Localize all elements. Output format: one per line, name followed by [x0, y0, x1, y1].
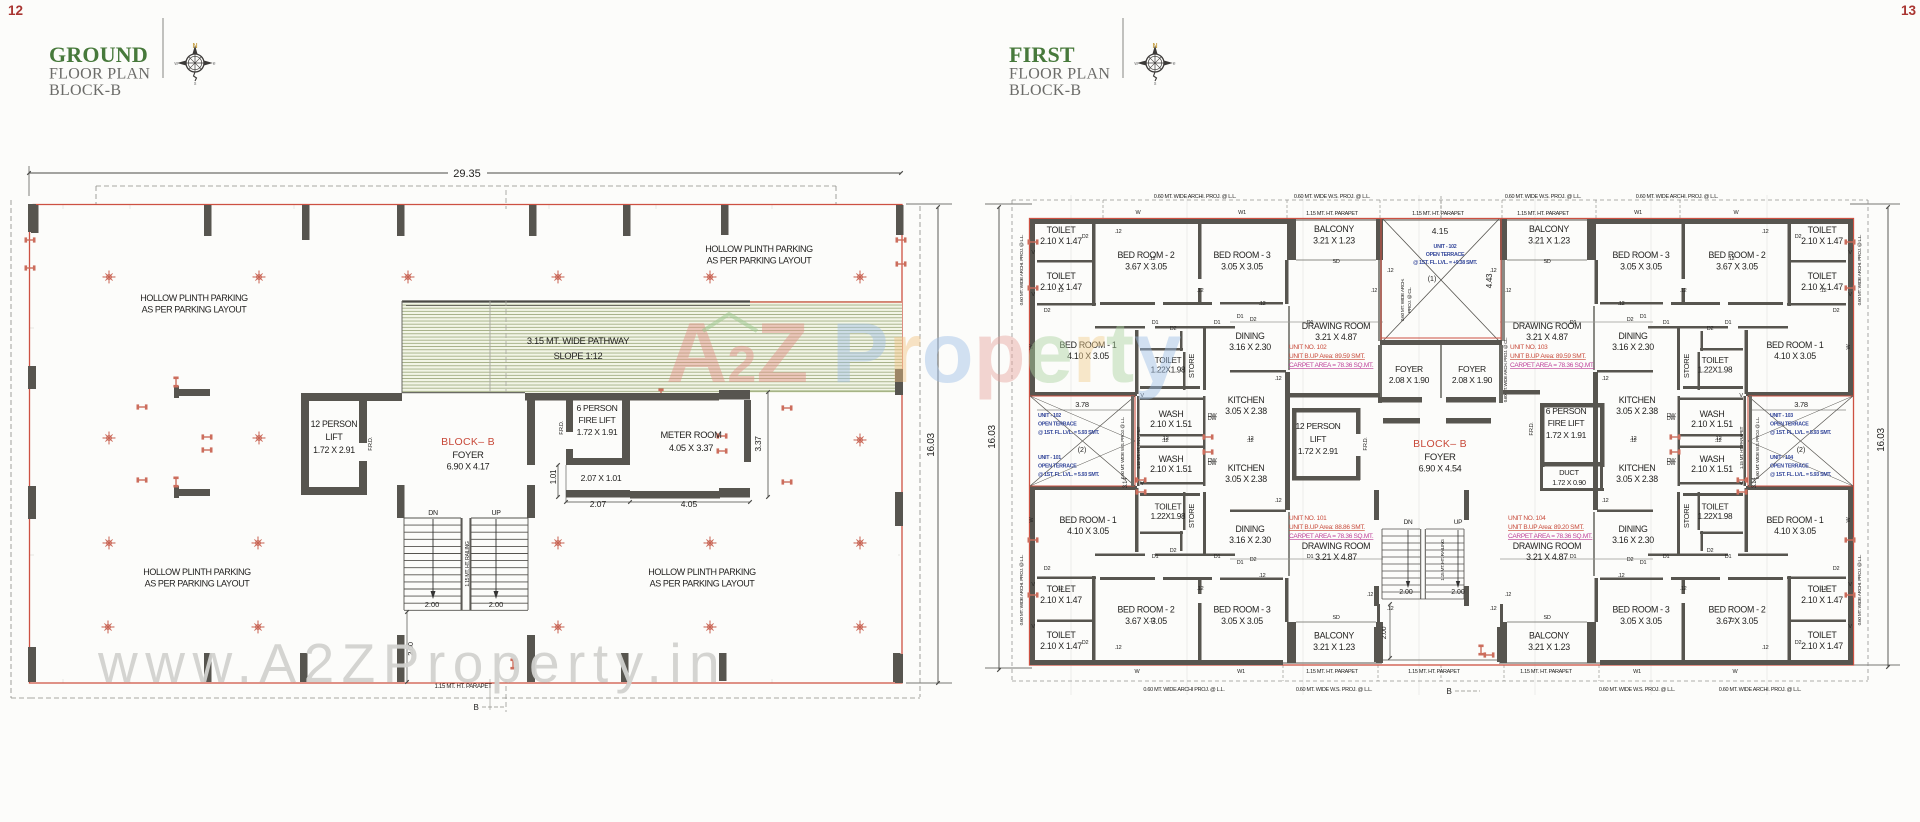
svg-text:WASH: WASH [1159, 409, 1184, 419]
svg-text:3.05 X 3.05: 3.05 X 3.05 [1620, 262, 1662, 272]
svg-text:1.22X1.98: 1.22X1.98 [1151, 512, 1186, 521]
svg-text:.12: .12 [1505, 288, 1512, 294]
svg-text:B: B [1446, 687, 1451, 696]
svg-text:4.05 X 3.37: 4.05 X 3.37 [669, 443, 713, 453]
svg-text:D2: D2 [1707, 548, 1714, 554]
svg-text:3.67 X 3.05: 3.67 X 3.05 [1716, 262, 1758, 272]
svg-text:D1: D1 [1663, 554, 1670, 560]
svg-text:TOILET: TOILET [1047, 630, 1077, 640]
svg-text:www.A2ZProperty.in: www.A2ZProperty.in [97, 632, 727, 694]
svg-text:3.21 X 4.87: 3.21 X 4.87 [1526, 332, 1568, 342]
svg-text:(2): (2) [1797, 447, 1806, 454]
svg-text:.12: .12 [1728, 256, 1735, 262]
svg-text:DW: DW [1667, 461, 1677, 467]
svg-text:DINING: DINING [1619, 524, 1648, 534]
svg-text:3.05 X 3.05: 3.05 X 3.05 [1221, 616, 1263, 626]
svg-text:2.00: 2.00 [1381, 626, 1388, 639]
svg-text:3.21 X 1.23: 3.21 X 1.23 [1528, 642, 1570, 652]
svg-text:D1: D1 [1570, 554, 1577, 560]
svg-text:BLOCK– B: BLOCK– B [441, 436, 495, 448]
svg-text:2.10 X 1.47: 2.10 X 1.47 [1040, 641, 1082, 651]
svg-text:B: B [473, 703, 478, 712]
svg-text:UNIT NO. 103: UNIT NO. 103 [1510, 344, 1548, 351]
svg-text:AS PER PARKING LAYOUT: AS PER PARKING LAYOUT [707, 256, 813, 266]
svg-text:3.78: 3.78 [1075, 400, 1089, 409]
svg-text:.12: .12 [1387, 606, 1394, 612]
svg-text:.12: .12 [1149, 618, 1156, 624]
svg-text:1.22X1.98: 1.22X1.98 [1698, 512, 1733, 521]
svg-text:W1: W1 [1238, 210, 1246, 216]
svg-text:CARPET AREA = 78.36 SQ.MT.: CARPET AREA = 78.36 SQ.MT. [1289, 533, 1374, 540]
svg-text:UNIT - 101: UNIT - 101 [1038, 455, 1061, 461]
svg-text:2.08 X 1.90: 2.08 X 1.90 [1389, 375, 1430, 385]
svg-text:2.08 X 1.90: 2.08 X 1.90 [1452, 375, 1493, 385]
svg-text:KITCHEN: KITCHEN [1619, 463, 1656, 473]
svg-text:BALCONY: BALCONY [1314, 631, 1354, 641]
svg-text:.12: .12 [1259, 301, 1266, 307]
svg-text:1.72 X 2.91: 1.72 X 2.91 [313, 445, 355, 455]
svg-text:STORE: STORE [1682, 354, 1691, 378]
svg-text:D2: D2 [1795, 640, 1802, 646]
svg-text:DINING: DINING [1236, 331, 1265, 341]
svg-text:3.05 X 2.38: 3.05 X 2.38 [1616, 406, 1658, 416]
svg-text:1.15 MT. HT. PARAPET: 1.15 MT. HT. PARAPET [1408, 669, 1461, 675]
svg-text:.12: .12 [1197, 288, 1204, 294]
svg-text:3.37: 3.37 [753, 436, 763, 452]
svg-text:UNIT NO. 101: UNIT NO. 101 [1289, 515, 1327, 522]
svg-text:TOILET: TOILET [1808, 271, 1838, 281]
svg-text:4.05: 4.05 [681, 499, 698, 509]
svg-text:FOYER: FOYER [1424, 452, 1456, 463]
svg-text:2.10 X 1.47: 2.10 X 1.47 [1801, 236, 1843, 246]
svg-text:AS PER PARKING LAYOUT: AS PER PARKING LAYOUT [145, 579, 251, 589]
svg-text:1.72 X 1.91: 1.72 X 1.91 [1546, 430, 1587, 440]
svg-text:1.15 MT. HT. PARAPET: 1.15 MT. HT. PARAPET [1412, 211, 1465, 217]
svg-text:0.60 MT. WIDE ARCHI PROJ.: 0.60 MT. WIDE ARCHI PROJ. @ L.L. [1143, 687, 1225, 693]
svg-text:13: 13 [1901, 3, 1917, 18]
svg-text:2.10 X 1.47: 2.10 X 1.47 [1801, 595, 1843, 605]
svg-text:UNIT - 103: UNIT - 103 [1770, 413, 1793, 419]
svg-text:.12: .12 [1057, 288, 1064, 294]
svg-text:DINING: DINING [1619, 331, 1648, 341]
svg-text:@ 1ST. FL. LVL. = 5.93 SMT.: @ 1ST. FL. LVL. = 5.93 SMT. [1770, 430, 1832, 436]
svg-text:TOILET: TOILET [1047, 271, 1077, 281]
svg-text:D1: D1 [1725, 320, 1732, 326]
svg-text:2.10 X 1.47: 2.10 X 1.47 [1040, 236, 1082, 246]
svg-text:SD: SD [1332, 259, 1339, 265]
svg-text:D1: D1 [1570, 320, 1577, 326]
svg-text:UP: UP [491, 510, 501, 517]
svg-text:.12: .12 [1057, 586, 1064, 592]
svg-text:LIFT: LIFT [1310, 434, 1326, 444]
svg-text:.12: .12 [1275, 376, 1282, 382]
svg-text:D2: D2 [1795, 234, 1802, 240]
svg-text:SLOPE 1:12: SLOPE 1:12 [554, 351, 603, 361]
svg-text:12 PERSON: 12 PERSON [1295, 421, 1340, 431]
svg-text:UNIT B.UP Area: 89.59 SMT.: UNIT B.UP Area: 89.59 SMT. [1510, 353, 1586, 360]
svg-text:BED ROOM - 1: BED ROOM - 1 [1766, 515, 1823, 525]
svg-text:HOLLOW PLINTH PARKING: HOLLOW PLINTH PARKING [705, 244, 813, 254]
svg-text:.12: .12 [1115, 229, 1122, 235]
svg-text:3.16 X 2.30: 3.16 X 2.30 [1229, 535, 1271, 545]
svg-text:OPEN TERRACE: OPEN TERRACE [1770, 422, 1809, 428]
svg-text:3.05 X 2.38: 3.05 X 2.38 [1225, 406, 1267, 416]
svg-text:DW: DW [1667, 413, 1677, 419]
svg-text:3.78: 3.78 [1794, 400, 1808, 409]
svg-text:D2: D2 [1250, 557, 1257, 563]
svg-text:.12: .12 [1728, 618, 1735, 624]
svg-text:3.67 X 3.05: 3.67 X 3.05 [1716, 616, 1758, 626]
svg-text:(2): (2) [1078, 447, 1087, 454]
svg-text:.12: .12 [1762, 645, 1769, 651]
svg-text:3.14: 3.14 [1752, 477, 1758, 488]
svg-text:3.05 X 2.38: 3.05 X 2.38 [1616, 474, 1658, 484]
svg-text:BALCONY: BALCONY [1314, 224, 1354, 234]
svg-text:WASH: WASH [1700, 454, 1725, 464]
svg-text:FIRE LIFT: FIRE LIFT [579, 415, 617, 425]
svg-text:BED ROOM - 2: BED ROOM - 2 [1708, 605, 1765, 615]
svg-text:0.60 MT. WIDE W.S. PROJ. @: 0.60 MT. WIDE W.S. PROJ. @ L.L. [1296, 687, 1373, 693]
svg-text:1.15 MT. HT. PARAPET: 1.15 MT. HT. PARAPET [1739, 426, 1744, 469]
svg-text:LIFT: LIFT [326, 432, 344, 442]
svg-text:@ 1ST. FL. LVL. = 5.93 SMT.: @ 1ST. FL. LVL. = 5.93 SMT. [1038, 472, 1100, 478]
svg-text:AS PER PARKING LAYOUT: AS PER PARKING LAYOUT [650, 579, 756, 589]
svg-text:DRAWING ROOM: DRAWING ROOM [1302, 541, 1370, 551]
svg-text:1.15 MT. HT. PARAPET: 1.15 MT. HT. PARAPET [1517, 211, 1570, 217]
svg-text:4.10 X 3.05: 4.10 X 3.05 [1774, 351, 1816, 361]
svg-text:METER ROOM: METER ROOM [660, 430, 721, 440]
svg-text:4.43: 4.43 [1485, 273, 1494, 288]
svg-text:1.22X1.98: 1.22X1.98 [1698, 366, 1733, 375]
svg-text:W1: W1 [1634, 210, 1642, 216]
svg-text:D2: D2 [1170, 548, 1177, 554]
svg-text:12 PERSON: 12 PERSON [311, 419, 358, 429]
svg-text:.12: .12 [1275, 498, 1282, 504]
svg-text:D2: D2 [1044, 566, 1051, 572]
svg-text:@ 1ST. FL. LVL. = 5.93 SMT.: @ 1ST. FL. LVL. = 5.93 SMT. [1770, 472, 1832, 478]
svg-text:3.05 X 3.05: 3.05 X 3.05 [1620, 616, 1662, 626]
svg-text:.12: .12 [1715, 436, 1722, 442]
svg-text:D1: D1 [1214, 320, 1221, 326]
svg-text:D1: D1 [1307, 554, 1314, 560]
svg-text:D2: D2 [1833, 566, 1840, 572]
svg-text:@ 1ST. FL. LVL. = +9.38 SMT.: @ 1ST. FL. LVL. = +9.38 SMT. [1413, 260, 1478, 266]
svg-text:2.10 X 1.51: 2.10 X 1.51 [1691, 464, 1733, 474]
svg-text:D1: D1 [1152, 554, 1159, 560]
svg-text:.12: .12 [1618, 301, 1625, 307]
svg-text:BED ROOM - 3: BED ROOM - 3 [1612, 605, 1669, 615]
svg-text:16.03: 16.03 [926, 433, 937, 457]
svg-text:12: 12 [8, 3, 23, 18]
svg-text:DN: DN [1404, 519, 1413, 526]
svg-text:D2: D2 [1082, 640, 1089, 646]
svg-text:6.90 X 4.54: 6.90 X 4.54 [1419, 464, 1462, 474]
svg-text:D2: D2 [1082, 234, 1089, 240]
svg-text:DUCT: DUCT [1559, 468, 1579, 477]
svg-text:0.60 MT. WIDE W.S. PROJ. @ L.L: 0.60 MT. WIDE W.S. PROJ. @ L.L. [1120, 417, 1125, 479]
svg-text:.12: .12 [1149, 256, 1156, 262]
svg-text:2.00: 2.00 [425, 600, 440, 609]
svg-text:BED ROOM - 3: BED ROOM - 3 [1213, 250, 1270, 260]
svg-text:3.05 X 2.38: 3.05 X 2.38 [1225, 474, 1267, 484]
svg-text:DW: DW [1208, 461, 1218, 467]
svg-text:2.10 X 1.51: 2.10 X 1.51 [1150, 464, 1192, 474]
svg-text:0.60 MT. WIDE W.S. PROJ. @: 0.60 MT. WIDE W.S. PROJ. @ L.L. [1294, 194, 1371, 200]
svg-text:29.35: 29.35 [453, 168, 481, 180]
svg-text:D1: D1 [1725, 554, 1732, 560]
svg-text:GROUND: GROUND [49, 42, 148, 67]
svg-text:.12: .12 [1490, 606, 1497, 612]
svg-text:0.60 MT. WIDE W.S. PROJ. @: 0.60 MT. WIDE W.S. PROJ. @ L.L. [1599, 687, 1676, 693]
svg-text:UNIT NO. 102: UNIT NO. 102 [1289, 344, 1327, 351]
svg-text:3.15 MT. WIDE PATHWAY: 3.15 MT. WIDE PATHWAY [527, 336, 629, 346]
svg-text:UNIT B.UP Area: 89.20 SMT.: UNIT B.UP Area: 89.20 SMT. [1508, 524, 1584, 531]
svg-text:BED ROOM - 2: BED ROOM - 2 [1708, 250, 1765, 260]
svg-text:D1: D1 [1307, 320, 1314, 326]
svg-text:.12: .12 [1680, 288, 1687, 294]
svg-text:3.21 X 4.87: 3.21 X 4.87 [1315, 552, 1357, 562]
svg-text:2.00: 2.00 [1399, 589, 1413, 596]
svg-text:AS PER PARKING LAYOUT: AS PER PARKING LAYOUT [142, 305, 248, 315]
svg-text:16.03: 16.03 [987, 425, 998, 449]
svg-text:.12: .12 [1680, 586, 1687, 592]
svg-text:BLOCK-B: BLOCK-B [1009, 82, 1081, 99]
svg-text:.12: .12 [1630, 436, 1637, 442]
svg-text:DRAWING ROOM: DRAWING ROOM [1513, 541, 1581, 551]
svg-text:.12: .12 [1371, 288, 1378, 294]
svg-text:1.15 MT. HT. RAILING: 1.15 MT. HT. RAILING [1440, 539, 1446, 581]
svg-text:1.15 MT. HT. PARAPET: 1.15 MT. HT. PARAPET [1306, 211, 1359, 217]
svg-text:.12: .12 [1259, 573, 1266, 579]
svg-text:4.15: 4.15 [1432, 226, 1449, 236]
svg-text:UNIT NO. 104: UNIT NO. 104 [1508, 515, 1546, 522]
svg-text:1.72 X 2.91: 1.72 X 2.91 [1298, 446, 1339, 456]
svg-text:FIRST: FIRST [1009, 42, 1075, 67]
svg-text:0.60 MT. WIDE W.S. PROJ. @ L.L: 0.60 MT. WIDE W.S. PROJ. @ L.L. [1755, 417, 1760, 479]
svg-text:CARPET AREA = 78.36 SQ.MT.: CARPET AREA = 78.36 SQ.MT. [1510, 362, 1595, 369]
svg-text:BLOCK-B: BLOCK-B [49, 82, 121, 99]
svg-text:TOILET: TOILET [1808, 630, 1838, 640]
svg-text:0.60 MT. WIDE ARCHI. PROJ. @ L: 0.60 MT. WIDE ARCHI. PROJ. @ L.L. [1857, 235, 1863, 306]
svg-text:1.15 MT. HT. RAILING: 1.15 MT. HT. RAILING [465, 541, 471, 587]
svg-text:0.60 MT. WIDE ARCHI. PROJ. @ L: 0.60 MT. WIDE ARCHI. PROJ. @ L.L. [1019, 555, 1025, 626]
svg-text:W1: W1 [1633, 669, 1641, 675]
svg-text:TOILET: TOILET [1808, 225, 1838, 235]
svg-text:D1: D1 [1237, 314, 1244, 320]
svg-text:@ 1ST. FL. LVL. = 5.93 SMT.: @ 1ST. FL. LVL. = 5.93 SMT. [1038, 430, 1100, 436]
svg-text:3.21 X 1.23: 3.21 X 1.23 [1313, 642, 1355, 652]
svg-text:.12: .12 [1162, 436, 1169, 442]
svg-text:3.21 X 4.87: 3.21 X 4.87 [1526, 552, 1568, 562]
svg-text:.12: .12 [1602, 376, 1609, 382]
svg-text:HOLLOW PLINTH PARKING: HOLLOW PLINTH PARKING [648, 567, 756, 577]
svg-text:1.15 MT. HT. PARAPET: 1.15 MT. HT. PARAPET [1136, 426, 1141, 469]
svg-text:OPEN TERRACE: OPEN TERRACE [1038, 464, 1077, 470]
svg-text:SD: SD [1543, 259, 1550, 265]
svg-text:.12: .12 [1367, 592, 1374, 598]
svg-text:D2: D2 [1833, 308, 1840, 314]
svg-text:.12: .12 [1247, 436, 1254, 442]
svg-text:0.60 MT. WIDE ARCHI. PROJ. @ L: 0.60 MT. WIDE ARCHI. PROJ. @ L.L. [1857, 555, 1863, 626]
svg-text:2.00: 2.00 [489, 600, 504, 609]
svg-text:0.60 MT. WIDE ARCH.: 0.60 MT. WIDE ARCH. [1400, 279, 1406, 322]
svg-text:F.R.D.: F.R.D. [368, 436, 374, 450]
svg-text:3.14: 3.14 [1123, 477, 1129, 488]
svg-text:STORE: STORE [1187, 504, 1196, 528]
svg-text:DN: DN [428, 510, 438, 517]
svg-text:D2: D2 [1627, 557, 1634, 563]
svg-text:1.15 MT. HT. PARAPET: 1.15 MT. HT. PARAPET [1520, 669, 1573, 675]
svg-text:0.60 MT. WIDE W.S. PROJ. @: 0.60 MT. WIDE W.S. PROJ. @ L.L. [1505, 194, 1582, 200]
svg-text:3.67 X 3.05: 3.67 X 3.05 [1125, 616, 1167, 626]
svg-text:.12: .12 [1602, 498, 1609, 504]
svg-text:F.R.D.: F.R.D. [1363, 438, 1369, 451]
svg-text:2.07 X 1.01: 2.07 X 1.01 [581, 473, 622, 483]
svg-text:3.16 X 2.30: 3.16 X 2.30 [1229, 342, 1271, 352]
svg-text:2.10 X 1.47: 2.10 X 1.47 [1801, 641, 1843, 651]
svg-text:BED ROOM - 1: BED ROOM - 1 [1059, 515, 1116, 525]
svg-text:KITCHEN: KITCHEN [1228, 395, 1265, 405]
svg-text:3.21 X 1.23: 3.21 X 1.23 [1313, 236, 1355, 246]
svg-text:D1: D1 [1663, 320, 1670, 326]
svg-text:BED ROOM - 3: BED ROOM - 3 [1213, 605, 1270, 615]
svg-text:.12: .12 [1505, 592, 1512, 598]
svg-text:3.21 X 4.87: 3.21 X 4.87 [1315, 332, 1357, 342]
svg-text:4.10 X 3.05: 4.10 X 3.05 [1067, 526, 1109, 536]
svg-text:BED ROOM - 2: BED ROOM - 2 [1117, 605, 1174, 615]
svg-text:UNIT B.UP Area: 89.59 SMT.: UNIT B.UP Area: 89.59 SMT. [1289, 353, 1365, 360]
svg-text:PROJ. @ CL.: PROJ. @ CL. [1407, 287, 1413, 313]
svg-text:SD: SD [1543, 615, 1550, 621]
svg-text:TOILET: TOILET [1047, 225, 1077, 235]
svg-text:2.10 X 1.47: 2.10 X 1.47 [1040, 595, 1082, 605]
svg-text:UP: UP [1454, 519, 1462, 526]
svg-text:.12: .12 [1115, 645, 1122, 651]
svg-text:6.90 X 4.17: 6.90 X 4.17 [447, 462, 490, 472]
svg-text:1.72 X 1.91: 1.72 X 1.91 [577, 427, 618, 437]
svg-text:FIRE LIFT: FIRE LIFT [1548, 418, 1585, 428]
svg-text:OPEN TERRACE: OPEN TERRACE [1770, 464, 1809, 470]
svg-text:0.60 MT. WIDE ARCHI. PROJ.: 0.60 MT. WIDE ARCHI. PROJ. @ L.L. [1719, 687, 1802, 693]
svg-text:.12: .12 [1618, 573, 1625, 579]
svg-text:1.72 X 0.90: 1.72 X 0.90 [1552, 478, 1586, 487]
svg-text:N: N [1152, 43, 1157, 50]
svg-text:2.10 X 1.51: 2.10 X 1.51 [1691, 419, 1733, 429]
svg-text:STORE: STORE [1187, 354, 1196, 378]
svg-text:F.R.D.: F.R.D. [559, 420, 565, 434]
svg-text:0.60 MT. WIDE ARCHI. PROJ. @ L: 0.60 MT. WIDE ARCHI. PROJ. @ L.L. [1019, 235, 1025, 306]
svg-text:SD: SD [1332, 615, 1339, 621]
svg-text:TOILET: TOILET [1702, 356, 1729, 365]
svg-text:D2: D2 [1627, 317, 1634, 323]
svg-text:UNIT B.UP Area: 88.86 SMT.: UNIT B.UP Area: 88.86 SMT. [1289, 524, 1365, 531]
svg-text:2.00: 2.00 [1451, 589, 1465, 596]
svg-text:D1: D1 [1237, 560, 1244, 566]
svg-text:3.67 X 3.05: 3.67 X 3.05 [1125, 262, 1167, 272]
svg-text:UNIT - 102: UNIT - 102 [1038, 413, 1061, 419]
svg-text:.12: .12 [1820, 586, 1827, 592]
svg-text:OPEN TERRACE: OPEN TERRACE [1426, 252, 1465, 258]
svg-text:OPEN TERRACE: OPEN TERRACE [1038, 422, 1077, 428]
svg-text:BALCONY: BALCONY [1529, 631, 1569, 641]
svg-text:F.R.D.: F.R.D. [1529, 423, 1535, 436]
svg-text:DW: DW [1208, 413, 1218, 419]
svg-text:HOLLOW PLINTH PARKING: HOLLOW PLINTH PARKING [143, 567, 251, 577]
svg-text:D2: D2 [1707, 326, 1714, 332]
svg-text:1.15 MT. HT. PARAPET: 1.15 MT. HT. PARAPET [1306, 669, 1359, 675]
svg-text:16.03: 16.03 [1876, 428, 1887, 452]
svg-text:0.60 MT. WIDE ARCHI. PROJ.: 0.60 MT. WIDE ARCHI. PROJ. @ L.L. [1154, 194, 1237, 200]
svg-text:STORE: STORE [1682, 504, 1691, 528]
svg-text:FLOOR PLAN: FLOOR PLAN [49, 66, 150, 83]
svg-text:3.05 X 3.05: 3.05 X 3.05 [1221, 262, 1263, 272]
svg-text:WASH: WASH [1700, 409, 1725, 419]
svg-text:KITCHEN: KITCHEN [1619, 395, 1656, 405]
svg-text:BED ROOM - 2: BED ROOM - 2 [1117, 250, 1174, 260]
svg-text:DINING: DINING [1236, 524, 1265, 534]
svg-text:6 PERSON: 6 PERSON [1546, 406, 1587, 416]
svg-text:(1): (1) [1428, 276, 1437, 283]
svg-text:CARPET AREA = 78.36 SQ.MT.: CARPET AREA = 78.36 SQ.MT. [1289, 362, 1374, 369]
svg-text:TOILET: TOILET [1155, 503, 1182, 512]
svg-text:BALCONY: BALCONY [1529, 224, 1569, 234]
svg-text:FOYER: FOYER [452, 450, 484, 461]
svg-text:FOYER: FOYER [1395, 364, 1423, 374]
svg-text:1.01: 1.01 [549, 469, 558, 484]
svg-text:4.10 X 3.05: 4.10 X 3.05 [1774, 526, 1816, 536]
svg-text:BED ROOM - 3: BED ROOM - 3 [1612, 250, 1669, 260]
svg-text:.12: .12 [1762, 229, 1769, 235]
svg-text:BLOCK– B: BLOCK– B [1413, 438, 1467, 450]
svg-text:TOILET: TOILET [1702, 503, 1729, 512]
svg-text:D2: D2 [1250, 317, 1257, 323]
svg-text:WASH: WASH [1159, 454, 1184, 464]
svg-text:UNIT - 104: UNIT - 104 [1770, 455, 1793, 461]
svg-text:UNIT - 102: UNIT - 102 [1434, 244, 1457, 250]
svg-text:N: N [192, 43, 197, 50]
svg-text:.12: .12 [1490, 268, 1497, 274]
svg-text:HOLLOW PLINTH PARKING: HOLLOW PLINTH PARKING [140, 293, 248, 303]
svg-text:3.16 X 2.30: 3.16 X 2.30 [1612, 535, 1654, 545]
svg-text:BED ROOM - 1: BED ROOM - 1 [1766, 340, 1823, 350]
svg-text:2.10 X 1.51: 2.10 X 1.51 [1150, 419, 1192, 429]
svg-text:KITCHEN: KITCHEN [1228, 463, 1265, 473]
svg-text:6 PERSON: 6 PERSON [576, 403, 617, 413]
svg-text:D1: D1 [1640, 560, 1647, 566]
svg-text:3.16 X 2.30: 3.16 X 2.30 [1612, 342, 1654, 352]
svg-text:FOYER: FOYER [1458, 364, 1486, 374]
svg-text:D1: D1 [1640, 314, 1647, 320]
svg-text:W1: W1 [1237, 669, 1245, 675]
svg-text:.12: .12 [1387, 268, 1394, 274]
svg-text:D1: D1 [1214, 554, 1221, 560]
svg-text:.12: .12 [1820, 288, 1827, 294]
svg-text:3.21 X 1.23: 3.21 X 1.23 [1528, 236, 1570, 246]
svg-text:.12: .12 [1197, 586, 1204, 592]
svg-text:FLOOR PLAN: FLOOR PLAN [1009, 66, 1110, 83]
svg-text:0.60 MT. WIDE ARCHI. PROJ.: 0.60 MT. WIDE ARCHI. PROJ. @ L.L. [1636, 194, 1719, 200]
svg-text:2.07: 2.07 [590, 499, 607, 509]
svg-text:CARPET AREA = 78.36 SQ.MT.: CARPET AREA = 78.36 SQ.MT. [1508, 533, 1593, 540]
